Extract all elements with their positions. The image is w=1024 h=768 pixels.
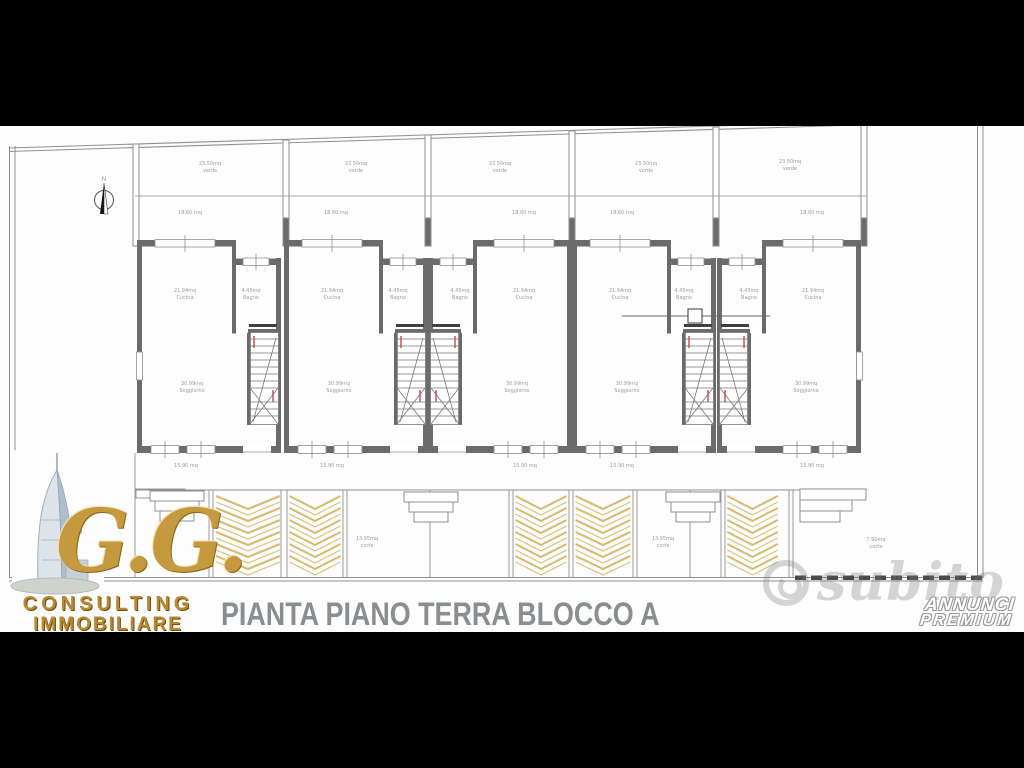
court-label-name: corte xyxy=(657,543,670,549)
front-strip-label: 18.60 mq xyxy=(610,210,634,216)
garden-label-area: 23.50mq xyxy=(489,161,511,167)
garden-label-name: verde xyxy=(203,168,217,174)
living-label-name: Soggiorno xyxy=(614,388,639,394)
letterbox-bottom xyxy=(0,632,1024,768)
bath-label-name: Bagno xyxy=(741,295,757,301)
bath-label-name: Bagno xyxy=(390,295,406,301)
garden-divider-strips xyxy=(133,124,867,246)
kitchen-label-area: 21.94mq xyxy=(174,288,196,294)
bath-label-area: 4.45mq xyxy=(674,288,693,294)
bath-label-name: Bagno xyxy=(676,295,692,301)
kitchen-label-name: Cucina xyxy=(176,295,193,301)
garden-label-area: 23.50mq xyxy=(779,159,801,165)
kitchen-label-name: Cucina xyxy=(323,295,340,301)
court-label-area: 13.95mq xyxy=(356,536,378,542)
living-label-name: Soggiorno xyxy=(326,388,351,394)
living-label-name: Soggiorno xyxy=(179,388,204,394)
terrace-label: 15.90 mq xyxy=(174,463,198,469)
garden-label-name: verde xyxy=(349,168,363,174)
kitchen-label-name: Cucina xyxy=(804,295,821,301)
screenshot-stage: N 23.50mq verde 23.50mq verde 23.50mq ve… xyxy=(0,0,1024,768)
terrace-label: 15.90 mq xyxy=(610,463,634,469)
badge-line-premium: PREMIUM xyxy=(892,613,1014,629)
court-label-area: 13.95mq xyxy=(652,536,674,542)
bath-label-area: 4.45mq xyxy=(739,288,758,294)
garden-label-area: 23.50mq xyxy=(345,161,367,167)
living-label-area: 30.99mq xyxy=(328,381,350,387)
brand-monogram: G.G. xyxy=(56,492,286,596)
kitchen-label-area: 21.94mq xyxy=(609,288,631,294)
court-small-label-area: 7.90mq xyxy=(866,537,885,543)
brand-line-immobiliare: IMMOBILIARE xyxy=(4,614,212,636)
letterbox-top xyxy=(0,0,1024,126)
bath-label-area: 4.45mq xyxy=(450,288,469,294)
front-strip-label: 18.60 mq xyxy=(324,210,348,216)
kitchen-label-area: 21.94mq xyxy=(513,288,535,294)
court-small-label-name: corte xyxy=(870,544,883,550)
front-strip-label: 18.60 mq xyxy=(512,210,536,216)
living-label-area: 30.99mq xyxy=(506,381,528,387)
living-label-area: 30.99mq xyxy=(616,381,638,387)
kitchen-label-name: Cucina xyxy=(515,295,532,301)
garden-label-name: verde xyxy=(639,168,653,174)
garden-label-name: verde xyxy=(783,166,797,172)
kitchen-label-area: 21.94mq xyxy=(802,288,824,294)
kitchen-label-area: 21.94mq xyxy=(321,288,343,294)
porch-steps xyxy=(800,489,866,522)
terrace-label: 15.90 mq xyxy=(320,463,344,469)
section-line xyxy=(622,309,770,323)
living-label-area: 30.99mq xyxy=(181,381,203,387)
court-label-name: corte xyxy=(361,543,374,549)
living-label-area: 30.99mq xyxy=(795,381,817,387)
kitchen-label-name: Cucina xyxy=(611,295,628,301)
terrace-label: 15.90 mq xyxy=(800,463,824,469)
bath-label-area: 4.45mq xyxy=(241,288,260,294)
bath-label-name: Bagno xyxy=(243,295,259,301)
living-label-name: Soggiorno xyxy=(504,388,529,394)
garden-label-area: 23.50mq xyxy=(199,161,221,167)
annunci-premium-badge: ANNUNCI PREMIUM xyxy=(892,595,1016,629)
north-label: N xyxy=(102,176,107,183)
garden-label-area: 23.50mq xyxy=(635,161,657,167)
badge-line-annunci: ANNUNCI xyxy=(894,595,1016,613)
front-strip-label: 18.60 mq xyxy=(178,210,202,216)
bath-label-area: 4.45mq xyxy=(388,288,407,294)
front-strip-label: 18.60 mq xyxy=(800,210,824,216)
plan-title: PIANTA PIANO TERRA BLOCCO A xyxy=(221,596,660,633)
subito-logo-icon xyxy=(763,560,809,606)
terrace-label: 15.90 mq xyxy=(513,463,537,469)
north-arrow-icon: N xyxy=(95,176,114,214)
side-windows xyxy=(137,352,863,380)
garden-label-name: verde xyxy=(493,168,507,174)
bath-label-name: Bagno xyxy=(452,295,468,301)
brand-line-consulting: CONSULTING xyxy=(4,593,212,616)
living-label-name: Soggiorno xyxy=(793,388,818,394)
